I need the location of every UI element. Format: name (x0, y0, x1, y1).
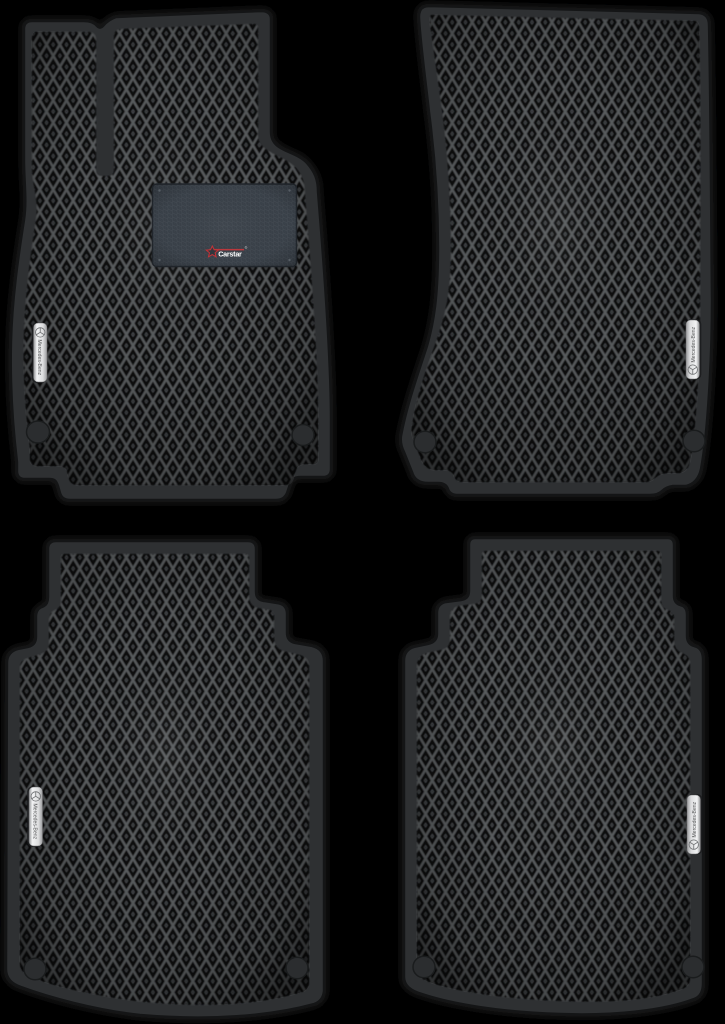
svg-text:Carstar: Carstar (218, 249, 242, 258)
